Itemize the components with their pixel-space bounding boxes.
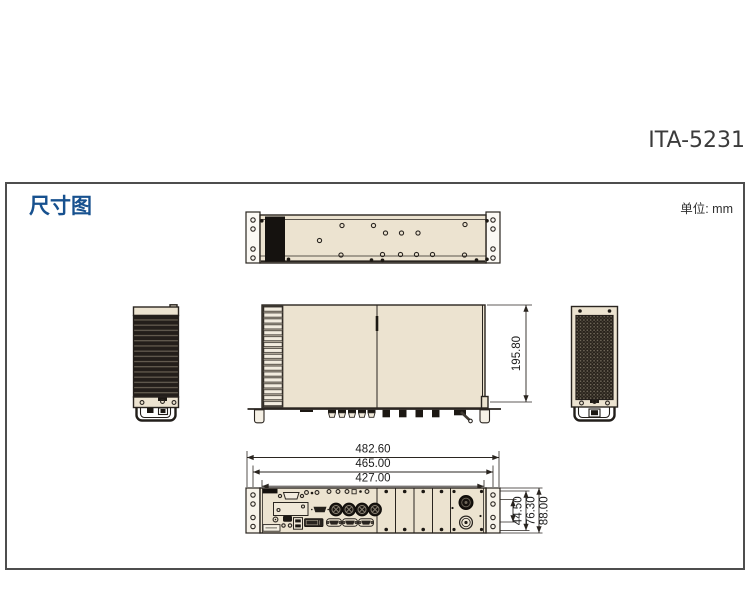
plan-view-body [262,305,485,408]
dim-front-widths: 482.60 465.00 427.00 [247,444,499,488]
mini-dsub-connector [314,507,327,512]
round-connector-lower [460,516,473,529]
power-jack [283,516,292,522]
dim-width-body-label: 427.00 [355,473,390,485]
usb-ports [294,518,303,530]
front-left-ear [246,488,260,533]
brand-logo [263,489,278,494]
dim-chassis-depth-label: 195.80 [511,336,523,371]
plan-view-front-connectors [328,410,472,423]
front-right-ear [486,488,500,533]
left-view-heatsink-fins [134,316,179,398]
main-plan-view: 195.80 [248,305,533,423]
dimension-drawing: 195.80 482.60 465.00 427.00 [0,0,750,591]
dim-width-overall-label: 482.60 [355,444,390,456]
left-view-handle [137,408,176,421]
dim-front-heights: 44.50 76.30 88.00 [500,488,551,533]
right-view-vent-grille [576,316,613,400]
front-panel-view: 482.60 465.00 427.00 [246,444,551,534]
dim-width-mount-holes-label: 465.00 [355,458,390,470]
dvi-connector [305,519,324,527]
datasheet-page: ITA-5231 尺寸图 单位: mm [0,0,750,591]
dim-height-overall-label: 88.00 [539,496,551,525]
left-side-view [134,305,179,421]
top-view [246,212,500,263]
dim-chassis-depth: 195.80 [487,305,532,402]
vga-connectors [327,519,374,527]
round-power-connector [459,496,473,510]
top-view-black-block [265,217,285,262]
right-side-view [572,307,618,421]
dim-height-mid-label: 76.30 [526,496,538,525]
plan-view-heatsink-ribs [263,306,283,407]
dim-height-inner-label: 44.50 [513,496,525,525]
